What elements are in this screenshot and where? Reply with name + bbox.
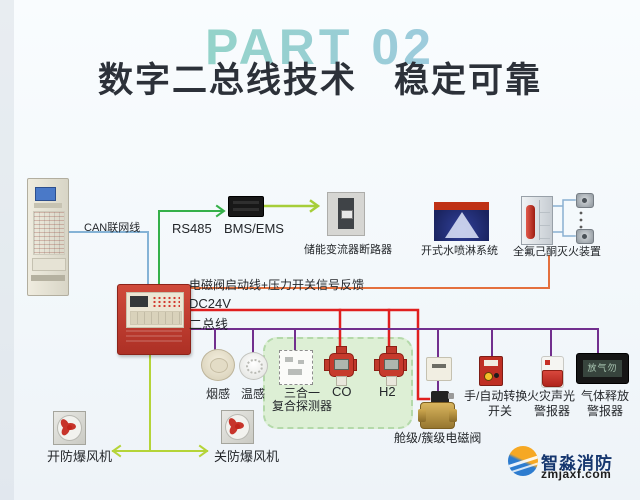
valve-label: 舱级/簇级电磁阀 [394, 429, 481, 446]
h2-label: H2 [379, 384, 396, 399]
h2-gas-detector [374, 346, 407, 384]
cabinet-indicator-grid [33, 211, 65, 255]
smoke-detector [201, 349, 235, 381]
gas-sign-screen: 放气勿入 [583, 360, 622, 377]
fire-alarm-control-panel [117, 284, 191, 355]
co-label: CO [332, 384, 352, 399]
suppression-label: 全氟己酮灭火装置 [513, 243, 601, 259]
fire-strobe-sounder [541, 356, 564, 388]
sprinkler-spray-cone [445, 212, 479, 238]
zhimiao-logo [508, 446, 538, 476]
panel-lower-rows [126, 330, 182, 344]
nozzle-ellipsis-dots [580, 212, 583, 229]
smoke-label: 烟感 [206, 385, 230, 402]
can-line-label: CAN联网线 [84, 219, 140, 235]
sprinkler-pipe-band [434, 202, 489, 210]
solenoid-feedback-label: 电磁阀启动线+压力开关信号反馈 [189, 276, 364, 293]
panel-lcd [130, 296, 148, 307]
dc24v-label: DC24V [189, 296, 231, 311]
panel-indicator-leds [152, 296, 180, 307]
cabinet-lcd-screen [35, 187, 56, 201]
combo-label-line2: 复合探测器 [272, 397, 332, 414]
solenoid-valve-body [420, 402, 455, 429]
explosion-proof-fan-close [221, 410, 254, 444]
fan-control-line [113, 353, 207, 456]
rs485-label: RS485 [172, 221, 212, 236]
brand-website: zmjaxf.com [541, 467, 611, 481]
fan-close-label: 关防爆风机 [214, 446, 279, 465]
network-control-cabinet [27, 178, 69, 296]
three-in-one-composite-detector [279, 350, 313, 385]
panel-face [126, 292, 184, 328]
fan-open-label: 开防爆风机 [47, 446, 112, 465]
cabinet-button-row [34, 203, 62, 208]
manual-auto-switch [479, 356, 503, 386]
cabinet-bottom-strip [31, 275, 65, 281]
can-network-line [67, 232, 148, 284]
heat-label: 温感 [241, 385, 265, 402]
manual-switch-label-line2: 开关 [488, 402, 512, 419]
open-water-spray-image [434, 202, 489, 241]
bms-to-breaker-arrow [264, 201, 318, 211]
cabinet-door [539, 200, 550, 240]
cabinet-blank-panel [32, 258, 66, 271]
storage-converter-breaker [327, 192, 365, 236]
two-bus-label: 二总线 [189, 314, 228, 333]
gas-sign-label-line2: 警报器 [587, 402, 623, 419]
discharge-nozzle-bottom [576, 229, 594, 244]
breaker-toggle [341, 210, 353, 219]
sprinkler-label: 开式水喷淋系统 [421, 242, 498, 258]
agent-cylinder [526, 205, 535, 239]
bms-ems-device [228, 196, 264, 217]
rs485-line [159, 206, 224, 284]
co-gas-detector [324, 346, 357, 384]
panel-buttons [130, 311, 182, 325]
discharge-nozzle-top [576, 193, 594, 208]
bms-label: BMS/EMS [224, 221, 284, 236]
fk-5-1-12-suppression-cabinet [521, 196, 553, 245]
strobe-label-line2: 警报器 [534, 402, 570, 419]
slide-canvas: PART 02 数字二总线技术 稳定可靠 [0, 0, 640, 500]
heat-detector [239, 352, 268, 380]
nozzle-bracket-line [551, 200, 575, 236]
breaker-label: 储能变流器断路器 [304, 241, 392, 257]
io-module [426, 357, 452, 381]
explosion-proof-fan-open [53, 411, 86, 445]
gas-release-warning-sign: 放气勿入 [576, 353, 629, 384]
